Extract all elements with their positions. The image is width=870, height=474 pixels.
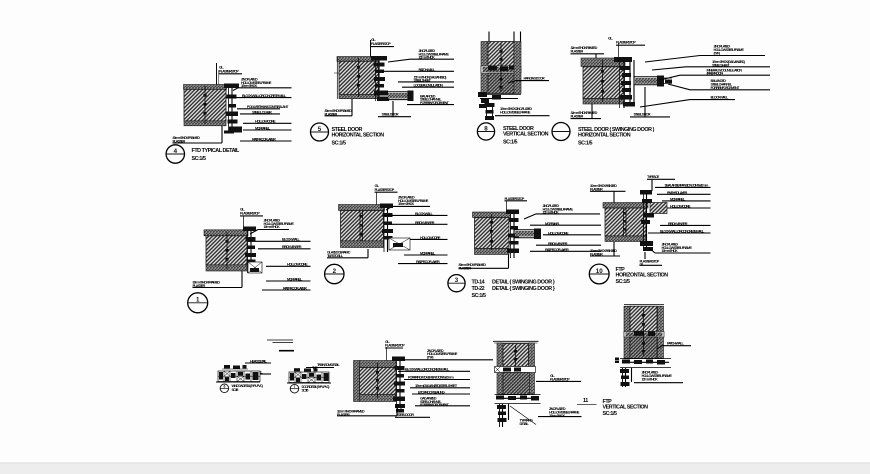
svg-text:HANGING DOOR: HANGING DOOR — [524, 76, 545, 81]
svg-text:SC:1/5: SC:1/5 — [232, 388, 239, 392]
svg-text:HORIZONTAL SECTION: HORIZONTAL SECTION — [616, 273, 669, 279]
svg-text:FOR REINFORCEMENT: FOR REINFORCEMENT — [711, 85, 740, 90]
svg-text:11: 11 — [583, 398, 588, 404]
svg-text:SC:1/5: SC:1/5 — [472, 293, 487, 299]
svg-text:HORIZONTAL SECTION: HORIZONTAL SECTION — [332, 132, 385, 138]
svg-text:8: 8 — [484, 125, 488, 132]
svg-text:TRANSOM DETAIL: TRANSOM DETAIL — [317, 362, 340, 367]
svg-text:PATCH WALL: PATCH WALL — [667, 341, 684, 346]
svg-text:PLASTER STOP: PLASTER STOP — [616, 40, 636, 45]
svg-text:DETAIL { SWINGING DOOR }: DETAIL { SWINGING DOOR } — [492, 279, 556, 285]
svg-text:PLASTER STOP: PLASTER STOP — [375, 187, 395, 192]
svg-text:HORIZONTAL SECTION: HORIZONTAL SECTION — [578, 132, 631, 138]
svg-text:PLASTER STOP: PLASTER STOP — [240, 211, 260, 216]
svg-text:PLASTER: PLASTER — [590, 186, 603, 191]
svg-text:TYP. FACE: TYP. FACE — [647, 174, 660, 179]
svg-text:FTD TYPICAL DETAIL: FTD TYPICAL DETAIL — [192, 148, 241, 154]
svg-text:1: 1 — [196, 297, 200, 304]
svg-text:2: 2 — [333, 268, 337, 275]
svg-text:SC:1/5: SC:1/5 — [192, 156, 207, 162]
svg-text:SC:1/5: SC:1/5 — [578, 140, 593, 146]
svg-text:1.5mm THICK: 1.5mm THICK — [398, 201, 414, 206]
svg-text:SC:1/5: SC:1/5 — [302, 389, 309, 393]
svg-text:TILES TO SILL: TILES TO SILL — [327, 253, 344, 258]
svg-text:PLASTER STOP: PLASTER STOP — [550, 376, 570, 381]
svg-text:PLASTER STOP: PLASTER STOP — [385, 343, 405, 348]
svg-text:10: 10 — [596, 268, 603, 275]
svg-text:STEEL DOOR: STEEL DOOR — [397, 412, 414, 417]
svg-text:PLASTER STOP: PLASTER STOP — [219, 68, 239, 73]
svg-text:STEEL DOOR: STEEL DOOR — [634, 112, 651, 117]
svg-text:4: 4 — [174, 148, 178, 155]
svg-text:STEEL DOOR: STEEL DOOR — [382, 112, 399, 117]
svg-text:VERTICAL SECTION: VERTICAL SECTION — [603, 405, 649, 411]
svg-text:SC:1/5: SC:1/5 — [603, 411, 618, 417]
svg-text:DETAIL { SWINGING DOOR }: DETAIL { SWINGING DOOR } — [492, 286, 556, 292]
svg-text:HEAD DETAIL: HEAD DETAIL — [250, 359, 267, 364]
svg-text:1.5mm THICK: 1.5mm THICK — [662, 248, 678, 253]
svg-text:SC:1/5: SC:1/5 — [616, 279, 631, 285]
svg-text:FOR REINFORCEMENT: FOR REINFORCEMENT — [420, 402, 449, 407]
svg-text:PLASTER: PLASTER — [571, 113, 584, 118]
svg-text:1.5mm THICK: 1.5mm THICK — [264, 224, 280, 229]
svg-text:1.5mm THICK: 1.5mm THICK — [642, 376, 658, 381]
svg-text:PLASTER STOP: PLASTER STOP — [371, 41, 391, 46]
svg-text:5: 5 — [318, 126, 322, 133]
svg-text:7: 7 — [294, 385, 296, 389]
svg-text:3: 3 — [455, 277, 459, 284]
svg-text:PLASTER: PLASTER — [571, 48, 584, 53]
svg-text:6: 6 — [223, 385, 225, 389]
svg-text:SC:1/5: SC:1/5 — [503, 139, 518, 145]
svg-text:HOLLOW STEEL FRAME: HOLLOW STEEL FRAME — [500, 109, 531, 114]
svg-text:TD-14: TD-14 — [472, 279, 485, 285]
svg-text:BLOCK WALL: BLOCK WALL — [711, 95, 729, 100]
svg-text:VERTICAL SECTION: VERTICAL SECTION — [503, 131, 549, 137]
svg-text:TD-22: TD-22 — [472, 286, 485, 292]
svg-text:SC:1/5: SC:1/5 — [332, 140, 347, 146]
